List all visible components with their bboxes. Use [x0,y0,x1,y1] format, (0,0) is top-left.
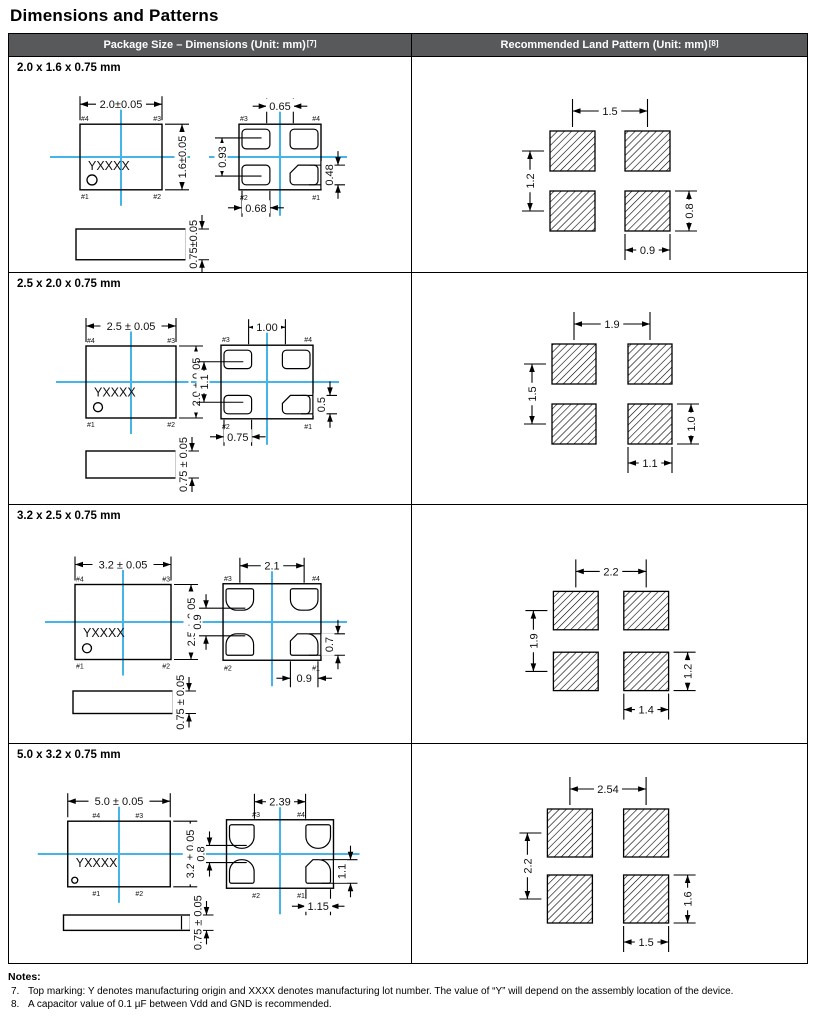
svg-text:1.15: 1.15 [307,901,328,913]
notes-list: 7.Top marking: Y denotes manufacturing o… [8,985,808,1011]
svg-text:#4: #4 [87,338,95,345]
svg-text:0.9: 0.9 [192,614,204,629]
svg-text:#4: #4 [76,577,84,584]
svg-text:0.48: 0.48 [324,164,336,185]
svg-text:1.6±0.05: 1.6±0.05 [177,136,189,179]
svg-text:2.54: 2.54 [597,784,618,796]
svg-text:#1: #1 [304,424,312,431]
svg-text:#1: #1 [297,893,305,900]
svg-text:1.00: 1.00 [256,322,277,334]
land-pattern-cell: 1.51.20.80.9 [412,57,807,272]
table-row-4: 5.0 x 3.2 x 0.75 mm#4#3#1#2YXXXX5.0 ± 0.… [9,743,807,963]
note-item-7: 7.Top marking: Y denotes manufacturing o… [8,985,808,998]
page-title: Dimensions and Patterns [10,6,219,26]
dimensions-table: Package Size – Dimensions (Unit: mm)[7] … [8,33,808,964]
land-pattern-cell: 2.21.91.21.4 [412,505,807,743]
svg-text:#3: #3 [252,812,260,819]
svg-text:1.2: 1.2 [525,173,537,188]
svg-text:2.2: 2.2 [603,566,618,578]
table-body: 2.0 x 1.6 x 0.75 mm#4#3#1#2YXXXX2.0±0.05… [9,57,807,963]
svg-text:#3: #3 [153,116,161,123]
svg-text:1.2: 1.2 [683,664,695,679]
svg-text:#2: #2 [252,893,260,900]
note-text: Top marking: Y denotes manufacturing ori… [28,985,808,998]
svg-text:0.65: 0.65 [269,101,290,113]
note-number: 7. [8,985,28,998]
svg-text:#1: #1 [87,422,95,429]
svg-text:#4: #4 [81,116,89,123]
svg-text:#1: #1 [92,891,100,898]
svg-text:#3: #3 [162,577,170,584]
svg-text:YXXXX: YXXXX [88,159,130,173]
table-row-1: 2.0 x 1.6 x 0.75 mm#4#3#1#2YXXXX2.0±0.05… [9,57,807,272]
svg-text:0.9: 0.9 [640,245,655,257]
svg-text:1.0: 1.0 [686,416,698,431]
note-number: 8. [8,998,28,1011]
svg-text:#4: #4 [312,576,320,583]
svg-text:1.9: 1.9 [528,633,540,648]
svg-text:0.75 ± 0.05: 0.75 ± 0.05 [178,437,190,492]
svg-text:#3: #3 [224,576,232,583]
svg-text:#1: #1 [312,195,320,202]
svg-text:0.8: 0.8 [195,846,207,861]
svg-text:#2: #2 [224,665,232,672]
svg-text:0.75±0.05: 0.75±0.05 [188,220,200,269]
svg-text:2.39: 2.39 [269,797,290,809]
svg-text:#3: #3 [222,337,230,344]
svg-text:0.9: 0.9 [297,673,312,685]
svg-text:0.68: 0.68 [245,203,266,215]
svg-text:1.9: 1.9 [604,319,619,331]
svg-text:3.2 ± 0.05: 3.2 ± 0.05 [99,559,148,571]
svg-text:0.75: 0.75 [227,432,248,444]
svg-text:#4: #4 [304,337,312,344]
table-row-3: 3.2 x 2.5 x 0.75 mm#4#3#1#2YXXXX3.2 ± 0.… [9,504,807,743]
notes: Notes: 7.Top marking: Y denotes manufact… [8,971,808,1011]
notes-title: Notes: [8,971,808,983]
svg-text:0.75 ± 0.05: 0.75 ± 0.05 [175,675,187,730]
svg-text:#3: #3 [167,338,175,345]
svg-text:0.93: 0.93 [217,146,229,167]
land-pattern-cell: 1.91.51.01.1 [412,273,807,504]
svg-text:#4: #4 [312,116,320,123]
svg-text:#3: #3 [240,116,248,123]
land-pattern-drawing-2: 1.91.51.01.1 [412,273,804,504]
svg-text:#2: #2 [153,194,161,201]
svg-text:YXXXX: YXXXX [76,856,118,870]
package-dimensions-cell: 5.0 x 3.2 x 0.75 mm#4#3#1#2YXXXX5.0 ± 0.… [9,744,412,963]
svg-text:#4: #4 [92,813,100,820]
svg-text:0.5: 0.5 [316,397,328,412]
package-dimensions-cell: 3.2 x 2.5 x 0.75 mm#4#3#1#2YXXXX3.2 ± 0.… [9,505,412,743]
svg-text:#1: #1 [76,664,84,671]
package-dimensions-cell: 2.0 x 1.6 x 0.75 mm#4#3#1#2YXXXX2.0±0.05… [9,57,412,272]
col-header-package-size-label: Package Size – Dimensions (Unit: mm) [103,39,305,51]
svg-text:YXXXX: YXXXX [94,385,136,399]
svg-text:2.5 ± 0.05: 2.5 ± 0.05 [107,321,156,333]
col-header-land-pattern-label: Recommended Land Pattern (Unit: mm) [501,39,708,51]
svg-text:1.5: 1.5 [602,106,617,118]
package-drawing-1: #4#3#1#2YXXXX2.0±0.051.6±0.050.75±0.05#3… [9,57,409,272]
svg-text:1.4: 1.4 [639,705,654,717]
svg-text:2.2: 2.2 [522,858,534,873]
footnote-ref-8: [8] [709,39,719,48]
svg-text:5.0 ± 0.05: 5.0 ± 0.05 [95,796,144,808]
svg-text:0.75 ± 0.05: 0.75 ± 0.05 [192,895,204,950]
package-dimensions-cell: 2.5 x 2.0 x 0.75 mm#4#3#1#2YXXXX2.5 ± 0.… [9,273,412,504]
package-drawing-4: #4#3#1#2YXXXX5.0 ± 0.053.2 ± 0.050.75 ± … [9,744,409,963]
svg-text:#2: #2 [135,891,143,898]
table-header-row: Package Size – Dimensions (Unit: mm)[7] … [9,34,807,57]
svg-text:#3: #3 [135,813,143,820]
note-text: A capacitor value of 0.1 µF between Vdd … [28,998,808,1011]
table-row-2: 2.5 x 2.0 x 0.75 mm#4#3#1#2YXXXX2.5 ± 0.… [9,272,807,504]
land-pattern-drawing-1: 1.51.20.80.9 [412,57,804,272]
svg-text:1.5: 1.5 [638,937,653,949]
package-drawing-3: #4#3#1#2YXXXX3.2 ± 0.052.5 ± 0.050.75 ± … [9,505,409,743]
land-pattern-cell: 2.542.21.61.5 [412,744,807,963]
svg-text:0.8: 0.8 [684,203,696,218]
svg-text:0.7: 0.7 [324,637,336,652]
col-header-package-size: Package Size – Dimensions (Unit: mm)[7] [9,34,412,56]
svg-text:1.1: 1.1 [199,374,211,389]
svg-text:YXXXX: YXXXX [83,626,125,640]
svg-text:#2: #2 [167,422,175,429]
svg-text:#2: #2 [162,664,170,671]
land-pattern-drawing-4: 2.542.21.61.5 [412,744,804,963]
footnote-ref-7: [7] [307,39,317,48]
svg-text:2.1: 2.1 [264,561,279,573]
svg-text:#1: #1 [81,194,89,201]
svg-text:1.6: 1.6 [683,891,695,906]
land-pattern-drawing-3: 2.21.91.21.4 [412,505,804,743]
col-header-land-pattern: Recommended Land Pattern (Unit: mm)[8] [412,34,807,56]
note-item-8: 8.A capacitor value of 0.1 µF between Vd… [8,998,808,1011]
svg-text:1.1: 1.1 [336,864,348,879]
svg-text:2.0±0.05: 2.0±0.05 [100,99,143,111]
svg-text:1.5: 1.5 [527,386,539,401]
package-drawing-2: #4#3#1#2YXXXX2.5 ± 0.052.0 ± 0.050.75 ± … [9,273,409,504]
svg-text:1.1: 1.1 [642,458,657,470]
svg-text:#4: #4 [297,812,305,819]
